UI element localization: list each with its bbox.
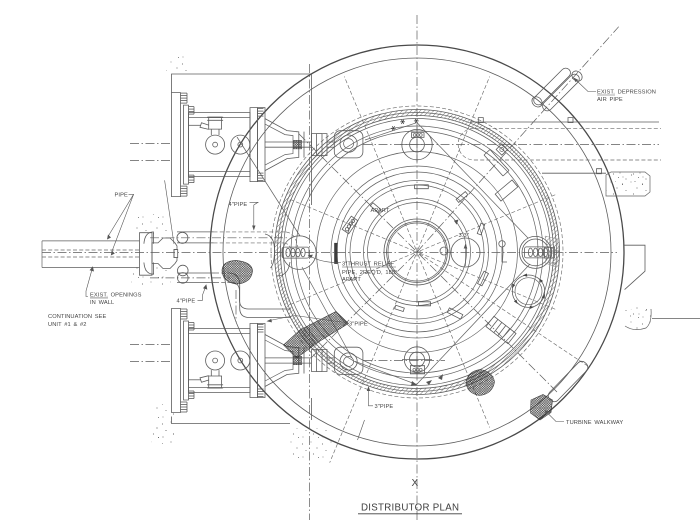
svg-text:3.3": 3.3" — [459, 233, 469, 239]
svg-text:APART: APART — [342, 277, 361, 283]
svg-text:TURBINE WALKWAY: TURBINE WALKWAY — [566, 420, 623, 426]
svg-text:3"PIPE: 3"PIPE — [349, 322, 368, 328]
svg-text:CONTINUATION SEE: CONTINUATION SEE — [48, 314, 107, 320]
svg-text:PIPE, 2REQ'D, 180°: PIPE, 2REQ'D, 180° — [342, 270, 398, 276]
svg-text:3"THRUST RELIEF: 3"THRUST RELIEF — [342, 262, 395, 268]
svg-text:4"PIPE: 4"PIPE — [177, 299, 196, 305]
svg-text:IN WALL: IN WALL — [90, 300, 114, 306]
svg-text:X: X — [412, 478, 419, 489]
svg-text:PIPE: PIPE — [115, 193, 128, 199]
svg-text:AIR PIPE: AIR PIPE — [597, 97, 623, 103]
svg-text:3"PIPE: 3"PIPE — [375, 404, 394, 410]
svg-text:UNIT #1 & #2: UNIT #1 & #2 — [48, 322, 87, 328]
svg-text:APART: APART — [371, 208, 390, 214]
svg-text:EXIST. DEPRESSION: EXIST. DEPRESSION — [597, 90, 656, 96]
svg-text:DISTRIBUTOR PLAN: DISTRIBUTOR PLAN — [361, 503, 459, 514]
svg-text:4"PIPE: 4"PIPE — [229, 202, 248, 208]
